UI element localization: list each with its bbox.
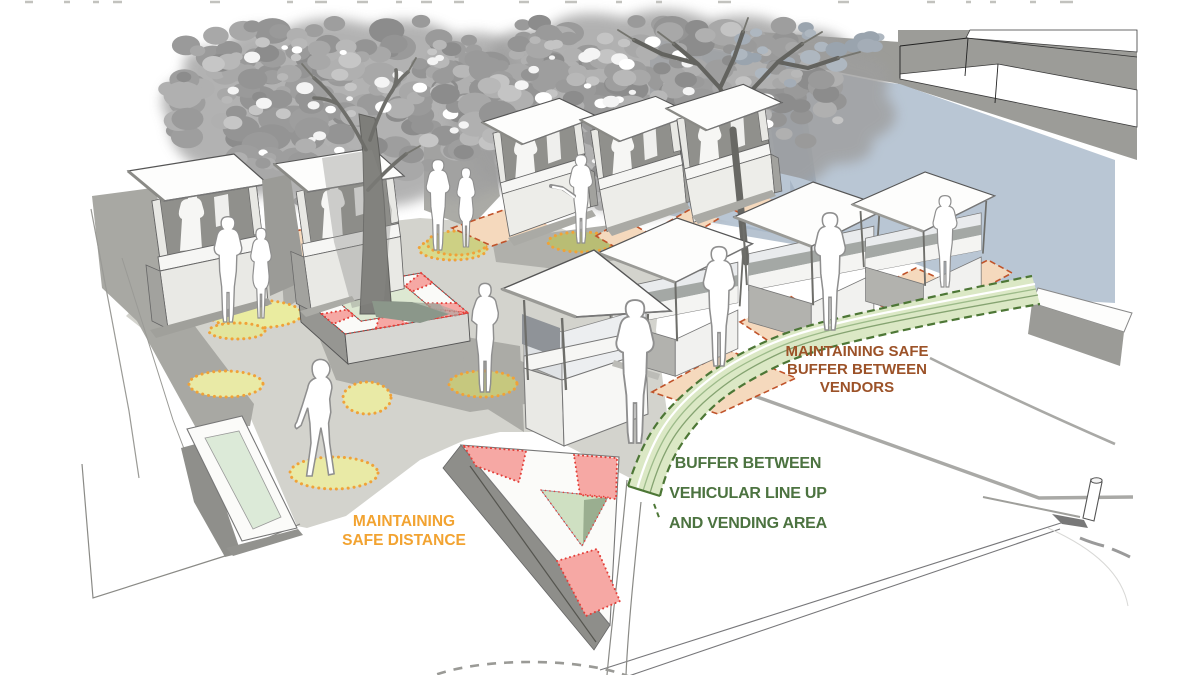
svg-text:BUFFER BETWEEN: BUFFER BETWEEN: [787, 361, 927, 378]
svg-text:AND VENDING AREA: AND VENDING AREA: [669, 515, 828, 532]
svg-text:SAFE DISTANCE: SAFE DISTANCE: [342, 532, 466, 549]
svg-text:BUFFER BETWEEN: BUFFER BETWEEN: [675, 455, 822, 472]
svg-text:MAINTAINING: MAINTAINING: [353, 513, 455, 530]
svg-text:VEHICULAR LINE UP: VEHICULAR LINE UP: [669, 485, 827, 502]
svg-text:MAINTAINING SAFE: MAINTAINING SAFE: [785, 343, 928, 360]
svg-text:VENDORS: VENDORS: [820, 379, 894, 396]
